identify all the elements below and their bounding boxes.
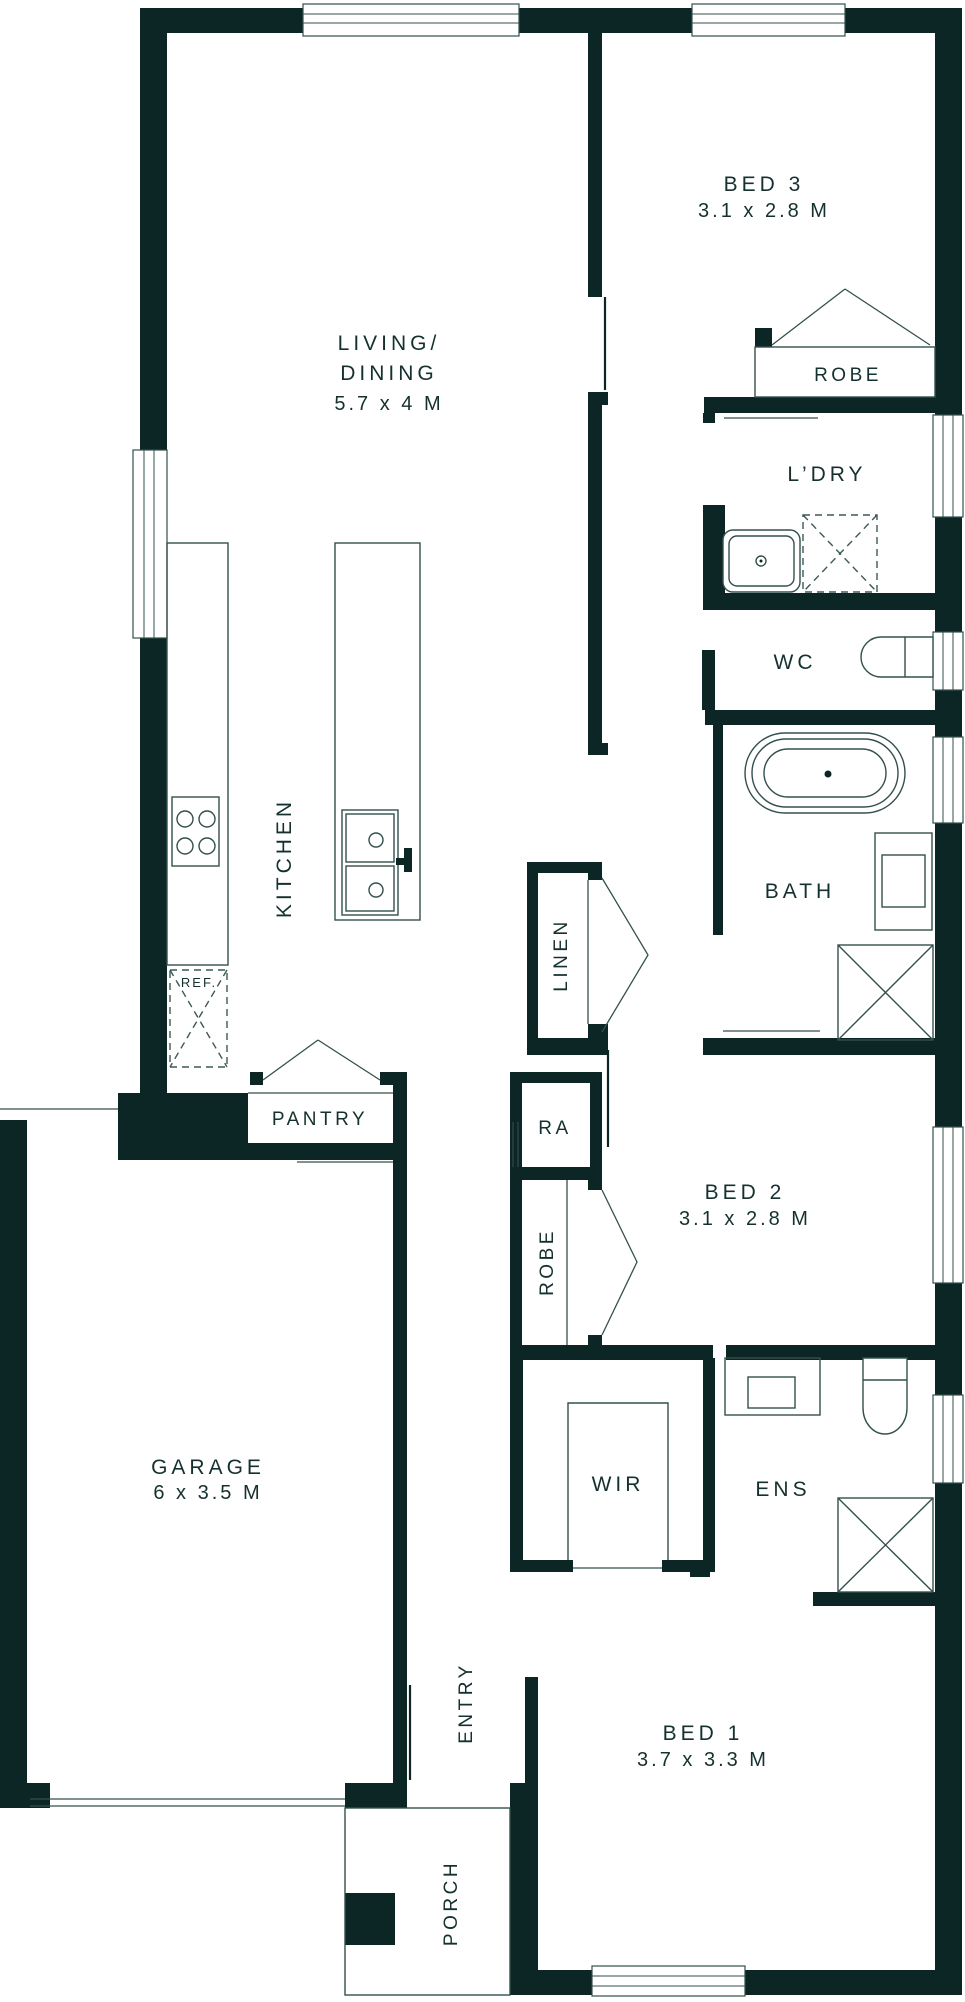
entry-label: ENTRY <box>456 1662 477 1744</box>
bed2-label: BED 2 <box>705 1181 786 1204</box>
porch-pillar <box>345 1893 395 1945</box>
ens-label: ENS <box>755 1478 810 1501</box>
bath-label: BATH <box>765 880 835 903</box>
window-bath <box>933 737 963 823</box>
ens-shower <box>838 1498 933 1592</box>
cooktop <box>172 797 219 866</box>
kitchen-sink <box>342 810 412 915</box>
laundry-label: L’DRY <box>787 463 866 486</box>
linen-doors <box>602 878 648 1032</box>
window-living-left <box>133 450 167 638</box>
window-laundry <box>933 415 963 517</box>
garage-door <box>30 1799 345 1806</box>
living-label-2: DINING <box>340 362 438 385</box>
bathtub <box>745 733 905 813</box>
window-bed1-bottom <box>592 1966 745 1996</box>
window-wc <box>933 632 963 690</box>
living-dims: 5.7 x 4 M <box>334 393 443 415</box>
bath-vanity <box>875 833 932 930</box>
living-label-1: LIVING/ <box>338 332 441 355</box>
wc-label: WC <box>774 651 817 674</box>
window-ens <box>933 1395 963 1483</box>
fridge-label: REF. <box>181 975 217 990</box>
porch-label: PORCH <box>441 1860 462 1946</box>
linen-label: LINEN <box>551 918 572 991</box>
window-bed3-top <box>692 4 845 36</box>
bed2-dims: 3.1 x 2.8 M <box>679 1208 811 1230</box>
bed2-robe-label: ROBE <box>537 1228 558 1296</box>
window-bed2 <box>933 1127 963 1283</box>
laundry-tub <box>723 530 800 592</box>
ens-vanity <box>725 1358 820 1415</box>
labels: LIVING/ DINING 5.7 x 4 M BED 3 3.1 x 2.8… <box>151 173 882 1946</box>
wir-label: WIR <box>592 1473 645 1496</box>
pantry-label: PANTRY <box>272 1109 368 1130</box>
bath-shower <box>838 945 933 1040</box>
bed1-label: BED 1 <box>663 1722 744 1745</box>
bed3-dims: 3.1 x 2.8 M <box>698 200 830 222</box>
washing-machine-space <box>803 515 877 592</box>
wc-toilet <box>861 637 933 677</box>
walls <box>0 8 962 1995</box>
ra-label: RA <box>538 1118 571 1139</box>
bed2-robe-doors <box>602 1190 637 1335</box>
floor-plan: LIVING/ DINING 5.7 x 4 M BED 3 3.1 x 2.8… <box>0 0 965 2002</box>
ens-toilet <box>863 1358 907 1434</box>
garage-label: GARAGE <box>151 1456 265 1479</box>
kitchen-bench <box>167 543 228 965</box>
window-living-top <box>303 4 519 36</box>
bed3-robe-label: ROBE <box>814 365 882 386</box>
bed3-robe-doors <box>772 289 930 345</box>
bed3-label: BED 3 <box>724 173 805 196</box>
garage-dims: 6 x 3.5 M <box>153 1482 262 1504</box>
bed1-dims: 3.7 x 3.3 M <box>637 1749 769 1771</box>
floor-plan-drawing: LIVING/ DINING 5.7 x 4 M BED 3 3.1 x 2.8… <box>0 0 965 2002</box>
kitchen-label: KITCHEN <box>273 798 296 918</box>
pantry-doors <box>263 1040 380 1080</box>
